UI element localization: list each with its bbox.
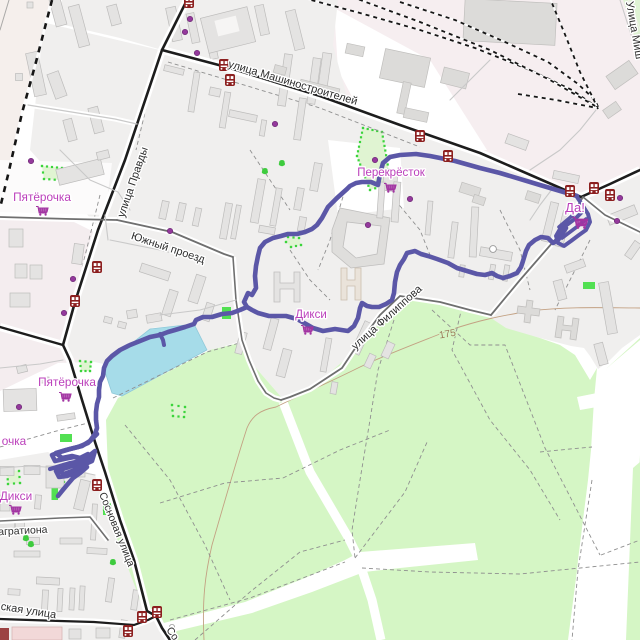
svg-text:Пятёрочка: Пятёрочка <box>13 190 71 204</box>
svg-text:Дикси: Дикси <box>295 309 327 321</box>
svg-text:очка: очка <box>2 434 27 448</box>
svg-text:Перекрёсток: Перекрёсток <box>357 167 426 179</box>
svg-text:Дикси: Дикси <box>0 489 32 503</box>
svg-text:Пятёрочка: Пятёрочка <box>38 375 96 389</box>
svg-text:Да!: Да! <box>565 200 585 215</box>
